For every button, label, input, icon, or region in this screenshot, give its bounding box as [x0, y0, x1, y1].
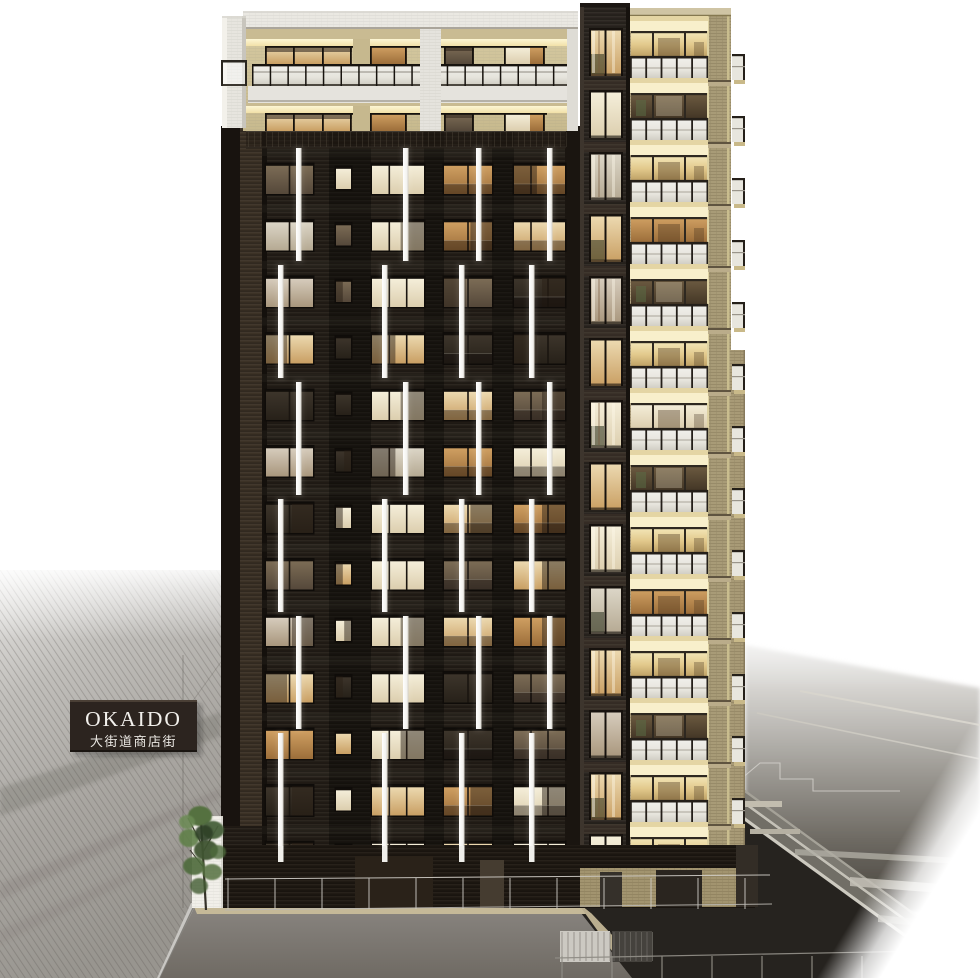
svg-text:大街道商店街: 大街道商店街	[90, 734, 177, 749]
svg-text:OKAIDO: OKAIDO	[85, 707, 182, 731]
